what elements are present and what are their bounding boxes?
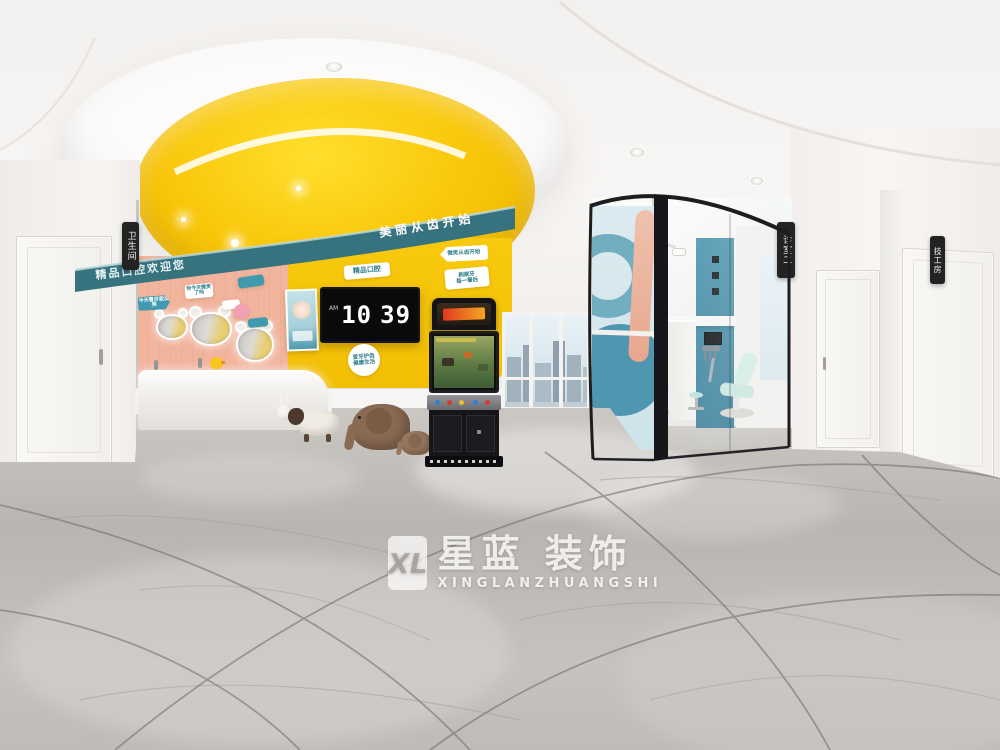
sheep-leg <box>304 434 309 442</box>
watermark: XL 星蓝 装饰 XINGLANZHUANGSHI <box>388 530 648 596</box>
floor-reflection <box>140 452 360 504</box>
arcade-control-panel[interactable] <box>427 395 501 410</box>
game-sprite <box>442 358 454 366</box>
watermark-logo: XL <box>388 536 427 590</box>
cabinet-lock <box>477 430 481 434</box>
arcade-screen <box>429 331 499 393</box>
arcade-button[interactable] <box>447 400 452 405</box>
arcade-cabinet-body <box>429 410 499 457</box>
sheep-leg <box>326 434 331 442</box>
watermark-logo-text: XL <box>388 547 427 580</box>
game-sprite <box>478 364 488 371</box>
game-hud <box>436 338 476 342</box>
arcade-button[interactable] <box>473 400 478 405</box>
arcade-marquee <box>432 298 496 330</box>
arcade-game-scene <box>434 336 494 388</box>
arcade-machine[interactable] <box>425 298 503 470</box>
base-led-strip <box>430 460 498 463</box>
elephant-eye <box>358 416 361 419</box>
arcade-button[interactable] <box>485 400 490 405</box>
plush-sheep <box>288 406 340 442</box>
floor-reflection <box>580 471 840 539</box>
watermark-subtitle: XINGLANZHUANGSHI <box>437 576 662 591</box>
arcade-base <box>425 456 503 467</box>
watermark-title: 星蓝 装饰 <box>437 535 662 575</box>
arcade-marquee-art <box>437 303 491 325</box>
elephant-ear <box>366 408 392 434</box>
arcade-button[interactable] <box>459 400 464 405</box>
cabinet-door <box>433 415 462 452</box>
elephant-ear <box>408 434 422 448</box>
panorama-viewport[interactable]: 卫生间 今天看牙我没哭 你今天微笑了吗 <box>0 0 1000 750</box>
game-sprite <box>464 352 472 358</box>
arcade-logo <box>443 307 485 320</box>
arcade-button[interactable] <box>435 400 440 405</box>
